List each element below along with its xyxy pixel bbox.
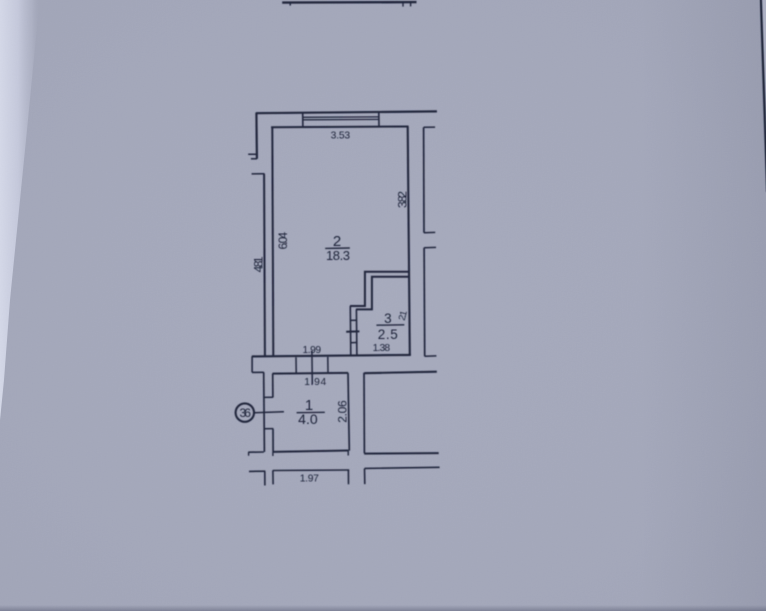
svg-text:1.97: 1.97 (300, 474, 319, 485)
svg-text:3: 3 (384, 311, 392, 326)
svg-text:36: 36 (239, 406, 251, 420)
svg-text:3.53: 3.53 (331, 131, 351, 142)
svg-text:1.99: 1.99 (303, 345, 322, 356)
svg-text:4.0: 4.0 (298, 411, 318, 427)
svg-text:4.81: 4.81 (251, 256, 265, 272)
svg-text:2.06: 2.06 (335, 400, 349, 423)
svg-text:3.82: 3.82 (395, 191, 409, 208)
svg-text:18.3: 18.3 (326, 248, 350, 263)
svg-text:2.5: 2.5 (378, 327, 398, 342)
svg-text:1.38: 1.38 (373, 343, 391, 354)
svg-text:6.04: 6.04 (276, 232, 290, 250)
svg-text:1.94: 1.94 (304, 377, 326, 388)
